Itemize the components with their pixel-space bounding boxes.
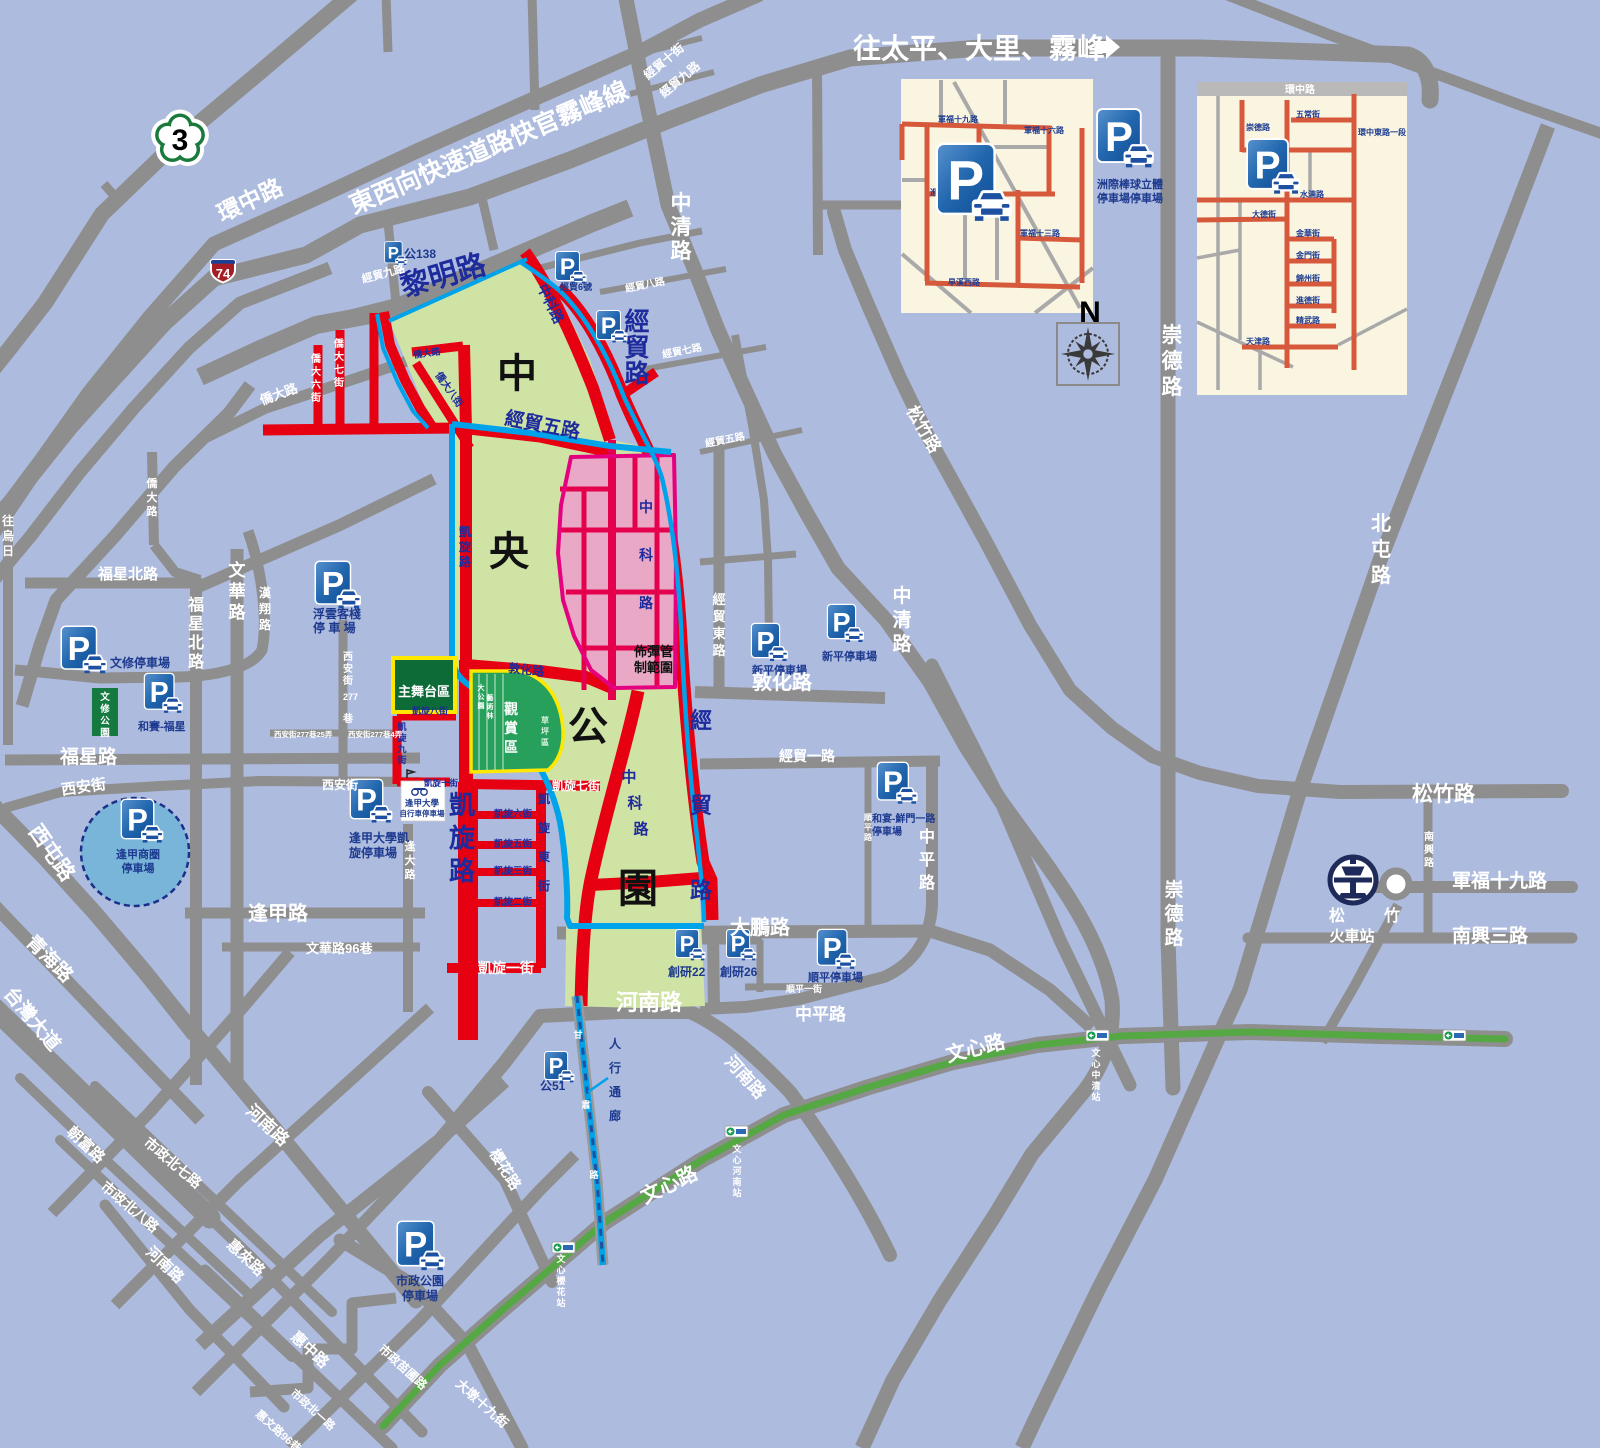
svg-text:逢甲大學: 逢甲大學 [405, 798, 440, 808]
svg-text:和賽-福星: 和賽-福星 [138, 719, 186, 733]
svg-text:市政公園: 市政公園 [396, 1273, 444, 1288]
svg-text:經貿6號: 經貿6號 [560, 281, 592, 292]
svg-text:文心櫻花站: 文心櫻花站 [555, 1253, 566, 1308]
svg-text:經貿一路: 經貿一路 [779, 748, 836, 764]
svg-text:停車場: 停車場 [122, 861, 155, 875]
svg-text:松竹路: 松竹路 [1412, 782, 1476, 806]
svg-text:文心中清站: 文心中清站 [1090, 1047, 1101, 1102]
svg-text:藝術林: 藝術林 [486, 693, 495, 720]
svg-text:新平停車場: 新平停車場 [822, 649, 877, 663]
svg-text:中平路: 中平路 [919, 827, 936, 892]
svg-text:凱旋八街: 凱旋八街 [412, 705, 448, 716]
svg-text:往烏日: 往烏日 [2, 513, 14, 558]
svg-text:金門街: 金門街 [1295, 250, 1320, 260]
svg-text:277: 277 [343, 692, 358, 702]
svg-text:順平一街: 順平一街 [785, 983, 822, 994]
svg-text:N: N [1079, 296, 1101, 329]
svg-text:僑大路: 僑大路 [146, 476, 159, 518]
svg-text:軍福十九路: 軍福十九路 [1452, 869, 1548, 892]
svg-text:大德街: 大德街 [1252, 209, 1276, 219]
svg-text:敦化路: 敦化路 [752, 670, 813, 694]
svg-text:3: 3 [172, 124, 189, 157]
svg-text:中平路: 中平路 [795, 1004, 847, 1024]
svg-text:甘: 甘 [573, 1029, 582, 1040]
svg-text:崇德路: 崇德路 [1164, 878, 1184, 949]
svg-text:福星北路: 福星北路 [97, 565, 159, 583]
svg-text:停車場: 停車場 [872, 825, 902, 838]
svg-text:凱旋路: 凱旋路 [458, 524, 472, 569]
svg-text:逢大路: 逢大路 [405, 839, 417, 881]
svg-text:福星路: 福星路 [59, 745, 118, 768]
svg-text:金華街: 金華街 [1295, 228, 1320, 238]
svg-text:往太平、大里、霧峰: 往太平、大里、霧峰 [853, 32, 1105, 64]
svg-text:和宴-鮮門一路: 和宴-鮮門一路 [871, 812, 936, 825]
svg-text:凱旋路: 凱旋路 [449, 790, 476, 886]
svg-text:園: 園 [618, 867, 658, 911]
svg-text:火車站: 火車站 [1329, 927, 1374, 945]
svg-text:逢甲大學凱: 逢甲大學凱 [349, 830, 409, 845]
svg-text:旱溪西路: 旱溪西路 [948, 277, 981, 287]
svg-text:漢翔路: 漢翔路 [258, 585, 272, 632]
svg-text:科: 科 [627, 794, 642, 812]
svg-text:南興三路: 南興三路 [1452, 924, 1529, 947]
svg-text:巷: 巷 [342, 712, 354, 725]
svg-text:北屯路: 北屯路 [1371, 512, 1392, 587]
svg-text:西安街277巷4弄: 西安街277巷4弄 [348, 729, 403, 739]
svg-text:草坪區: 草坪區 [541, 715, 549, 747]
svg-text:文心河南站: 文心河南站 [731, 1143, 742, 1198]
svg-text:安街: 安街 [342, 662, 353, 687]
svg-text:中: 中 [497, 352, 537, 396]
svg-text:創研26: 創研26 [719, 964, 758, 979]
svg-text:西安街: 西安街 [322, 777, 358, 792]
svg-text:公138: 公138 [404, 247, 436, 261]
svg-text:停車場停車場: 停車場停車場 [1097, 191, 1163, 205]
svg-text:水湳路: 水湳路 [1299, 189, 1325, 199]
svg-text:中清路: 中清路 [671, 192, 693, 263]
svg-text:西安街277巷25弄: 西安街277巷25弄 [274, 729, 333, 739]
svg-text:文修停車場: 文修停車場 [110, 655, 170, 670]
svg-text:崇德路: 崇德路 [1246, 122, 1271, 132]
svg-text:河南路: 河南路 [616, 990, 683, 1015]
svg-text:停車場: 停車場 [402, 1288, 438, 1303]
svg-text:凱旋三街: 凱旋三街 [494, 865, 533, 877]
svg-text:竹: 竹 [1383, 906, 1400, 925]
svg-text:央: 央 [489, 530, 530, 574]
svg-text:大鵬路: 大鵬路 [730, 915, 791, 939]
svg-text:浮雲客棧: 浮雲客棧 [313, 606, 361, 621]
svg-text:路: 路 [589, 1169, 599, 1180]
svg-text:文華路96巷: 文華路96巷 [306, 941, 373, 956]
svg-text:松: 松 [1329, 906, 1345, 925]
svg-text:佈彈管: 佈彈管 [633, 644, 673, 659]
svg-text:中清路: 中清路 [892, 584, 912, 655]
svg-text:精武路: 精武路 [1296, 315, 1321, 325]
svg-text:軍福十三路: 軍福十三路 [1020, 228, 1061, 238]
svg-text:肅: 肅 [581, 1099, 590, 1110]
svg-text:創研22: 創研22 [667, 964, 706, 979]
svg-text:凱旋一街: 凱旋一街 [478, 960, 534, 976]
svg-text:經貿路: 經貿路 [624, 307, 650, 388]
svg-text:觀賞區: 觀賞區 [504, 701, 518, 755]
svg-text:制範圍: 制範圍 [634, 660, 673, 675]
svg-text:主舞台區: 主舞台區 [398, 684, 450, 699]
svg-text:中: 中 [621, 768, 636, 786]
svg-text:錦州街: 錦州街 [1295, 273, 1320, 283]
svg-text:西: 西 [343, 651, 353, 663]
svg-text:74: 74 [216, 266, 231, 281]
svg-text:南興路: 南興路 [1424, 830, 1435, 869]
svg-text:凱旋五街: 凱旋五街 [494, 838, 533, 850]
svg-text:凱旋七街: 凱旋七街 [552, 778, 600, 793]
svg-text:進德街: 進德街 [1296, 295, 1320, 305]
svg-text:停 車 場: 停 車 場 [313, 620, 356, 635]
svg-text:天津路: 天津路 [1246, 336, 1271, 346]
svg-text:凱旋二街: 凱旋二街 [494, 896, 533, 908]
svg-text:軍福十六路: 軍福十六路 [1024, 125, 1065, 135]
svg-text:文華路: 文華路 [229, 560, 247, 622]
svg-text:大公園: 大公園 [478, 683, 485, 710]
svg-text:凱旋六街: 凱旋六街 [494, 808, 533, 820]
svg-text:軍福十九路: 軍福十九路 [938, 114, 979, 124]
svg-text:公: 公 [568, 705, 608, 749]
svg-text:自行車停車場: 自行車停車場 [400, 808, 445, 818]
svg-text:旋停車場: 旋停車場 [348, 845, 397, 860]
svg-text:順平路: 順平路 [864, 813, 873, 842]
svg-text:五常街: 五常街 [1296, 109, 1320, 119]
svg-text:洲際棒球立體: 洲際棒球立體 [1097, 177, 1163, 191]
svg-text:路: 路 [633, 820, 649, 838]
svg-text:逢甲商圈: 逢甲商圈 [116, 847, 160, 861]
svg-text:順平停車場: 順平停車場 [808, 970, 863, 984]
svg-text:環中路: 環中路 [1285, 83, 1316, 96]
svg-text:凱旋十街: 凱旋十街 [424, 778, 459, 788]
svg-text:環中東路一段: 環中東路一段 [1358, 127, 1406, 137]
svg-text:崇德路: 崇德路 [1162, 324, 1184, 399]
svg-text:逢甲路: 逢甲路 [248, 901, 309, 925]
svg-text:公51: 公51 [540, 1079, 566, 1093]
